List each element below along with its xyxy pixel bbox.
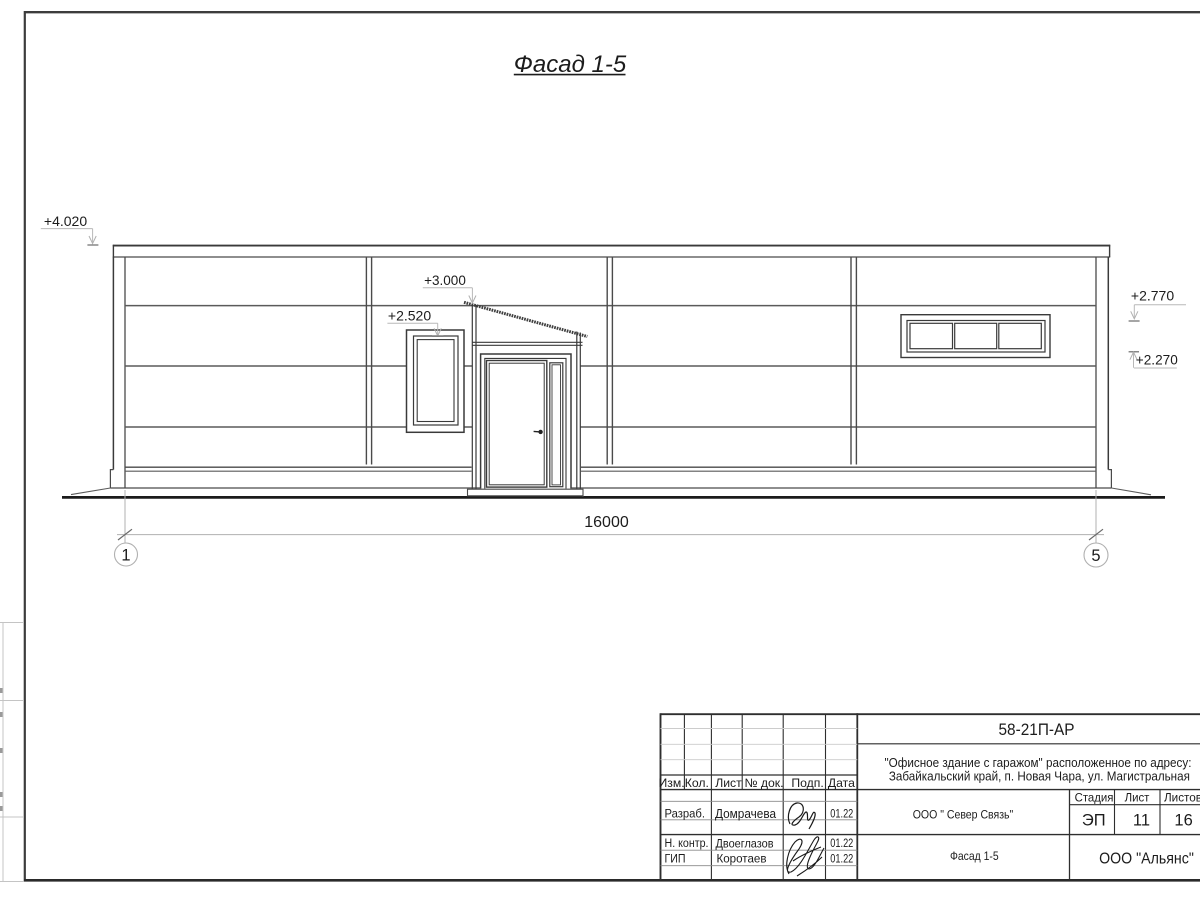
svg-text:Дата: Дата (828, 776, 855, 790)
svg-text:01.22: 01.22 (830, 852, 853, 866)
svg-text:Фасад 1-5: Фасад 1-5 (950, 849, 999, 863)
svg-text:Забайкальский край, п. Новая Ч: Забайкальский край, п. Новая Чара, ул. М… (889, 770, 1190, 784)
svg-text:"Офисное здание с гаражом" рас: "Офисное здание с гаражом" расположенное… (885, 756, 1192, 770)
svg-text:Двоеглазов: Двоеглазов (716, 836, 774, 850)
svg-text:1: 1 (121, 547, 130, 565)
svg-text:+2.770: +2.770 (1131, 287, 1174, 303)
svg-text:ООО " Север Связь": ООО " Север Связь" (913, 808, 1014, 822)
svg-text:+2.270: +2.270 (1136, 353, 1178, 368)
svg-text:16000: 16000 (584, 514, 629, 531)
svg-text:Стадия: Стадия (1075, 791, 1114, 805)
svg-text:Н. контр.: Н. контр. (665, 836, 709, 850)
svg-text:16: 16 (1174, 812, 1192, 830)
svg-text:58-21П-АР: 58-21П-АР (999, 721, 1075, 739)
svg-text:ГИП: ГИП (665, 851, 686, 865)
svg-text:ЭП: ЭП (1082, 812, 1106, 830)
svg-text:ООО "Альянс": ООО "Альянс" (1099, 851, 1194, 868)
svg-text:Коротаев: Коротаев (717, 851, 767, 865)
svg-text:Лист: Лист (715, 776, 742, 790)
svg-text:Лист: Лист (1125, 791, 1150, 805)
svg-text:Изм.: Изм. (659, 776, 685, 790)
svg-text:Листов: Листов (1164, 791, 1200, 805)
svg-text:№ док.: № док. (744, 776, 783, 790)
svg-text:11: 11 (1133, 812, 1150, 830)
svg-text:01.22: 01.22 (830, 807, 853, 821)
svg-text:Разраб.: Разраб. (665, 807, 706, 821)
svg-text:Домрачева: Домрачева (715, 807, 777, 821)
svg-text:5: 5 (1091, 547, 1100, 565)
svg-text:+2.520: +2.520 (388, 308, 431, 324)
svg-text:+3.000: +3.000 (424, 273, 466, 288)
svg-text:+4.020: +4.020 (44, 213, 87, 229)
svg-text:Подп.: Подп. (791, 776, 823, 790)
svg-text:01.22: 01.22 (830, 836, 853, 850)
svg-text:Кол.: Кол. (685, 776, 709, 790)
